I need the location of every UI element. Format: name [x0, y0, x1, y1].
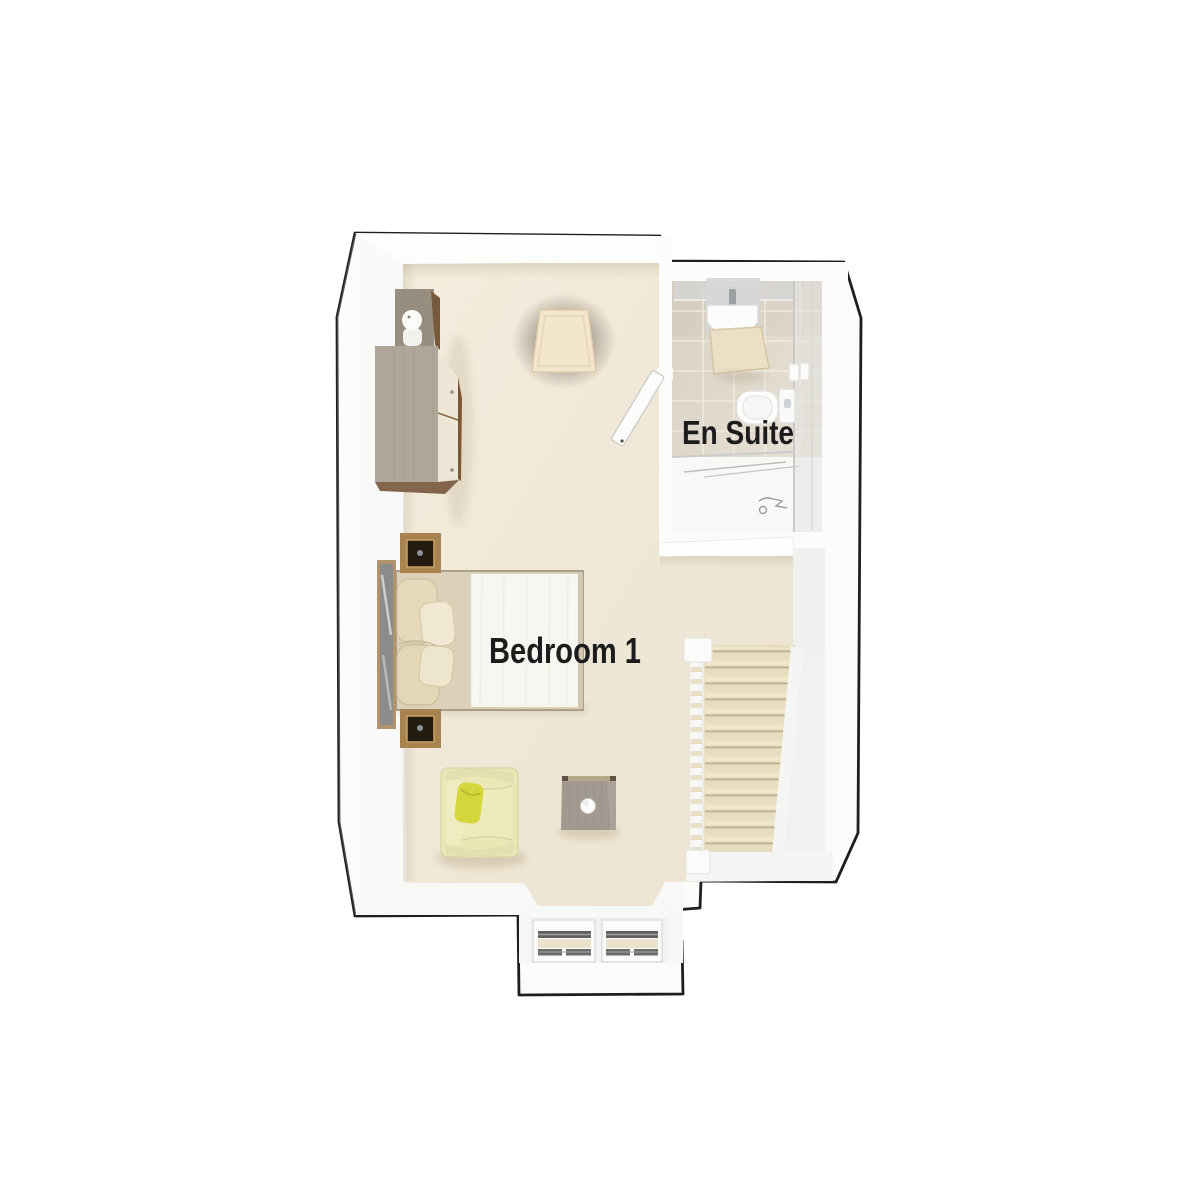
svg-text:En Suite: En Suite: [682, 414, 794, 451]
svg-text:Bedroom 1: Bedroom 1: [489, 630, 641, 671]
